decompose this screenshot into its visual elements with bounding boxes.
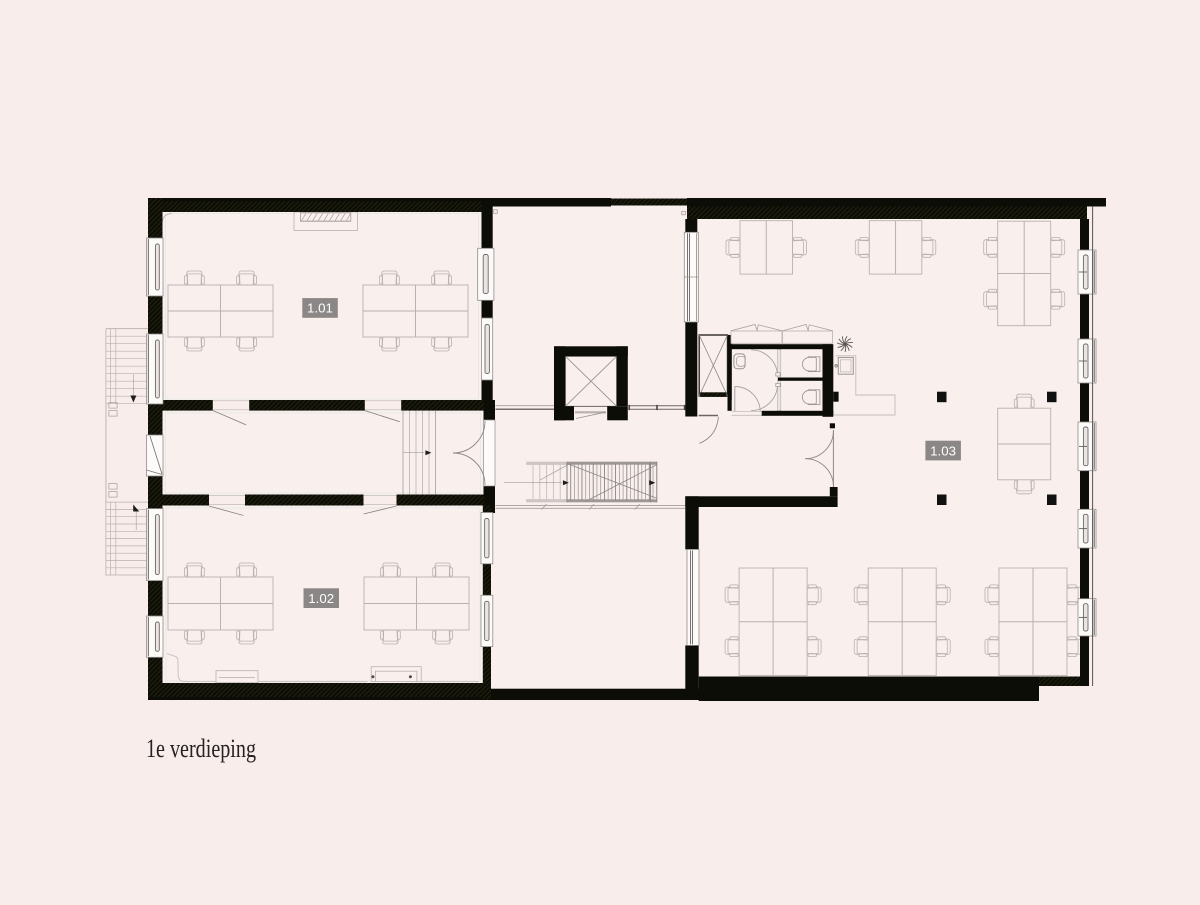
svg-text:1.02: 1.02 [308, 591, 334, 606]
svg-text:1.01: 1.01 [307, 301, 333, 316]
svg-text:1.03: 1.03 [930, 443, 956, 458]
svg-text:1e verdieping: 1e verdieping [146, 734, 256, 763]
